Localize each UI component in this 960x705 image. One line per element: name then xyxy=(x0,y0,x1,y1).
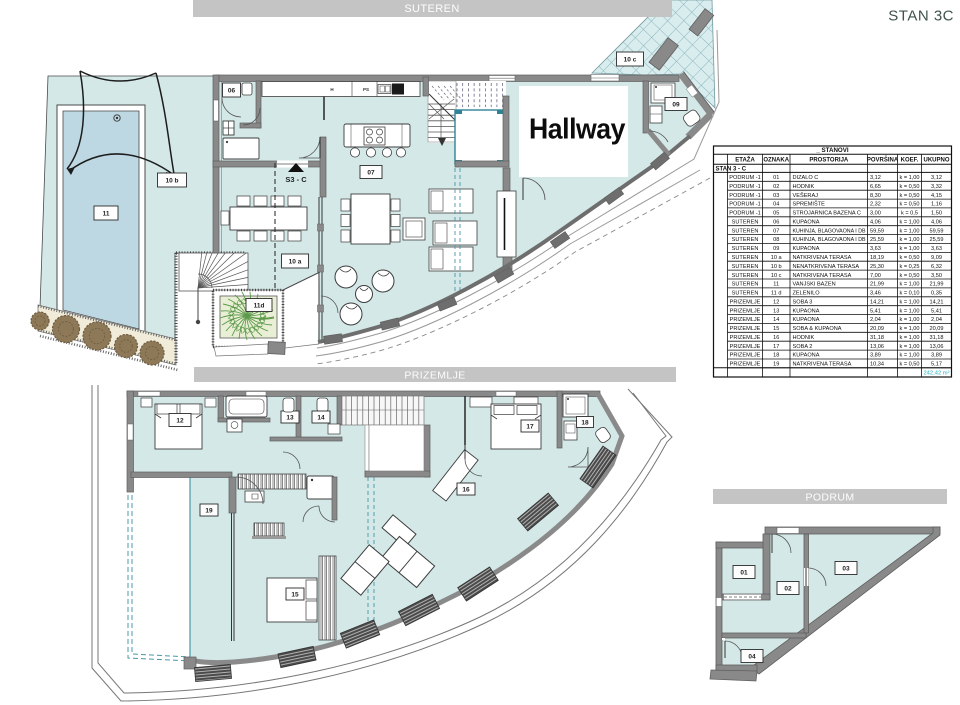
svg-text:k = 0,50: k = 0,50 xyxy=(899,362,919,368)
svg-text:POVRŠINA: POVRŠINA xyxy=(867,155,899,163)
svg-text:SUTEREN: SUTEREN xyxy=(732,255,759,261)
svg-text:SPREMIŠTE: SPREMIŠTE xyxy=(793,201,826,208)
svg-text:59,59: 59,59 xyxy=(930,228,944,234)
svg-text:17: 17 xyxy=(526,423,534,430)
svg-text:_ STANOVI: _ STANOVI xyxy=(815,147,848,154)
svg-text:21,99: 21,99 xyxy=(930,282,944,288)
svg-text:PRIZEMLJE: PRIZEMLJE xyxy=(404,370,465,382)
svg-text:k = 1,00: k = 1,00 xyxy=(899,344,919,350)
svg-text:3,12: 3,12 xyxy=(870,175,881,181)
svg-text:09: 09 xyxy=(672,101,680,108)
svg-text:k = 1,00: k = 1,00 xyxy=(899,282,919,288)
svg-text:k = 1,00: k = 1,00 xyxy=(899,326,919,332)
svg-text:1,16: 1,16 xyxy=(931,202,942,208)
svg-text:k = 0,50: k = 0,50 xyxy=(899,202,919,208)
svg-text:10 c: 10 c xyxy=(624,56,637,63)
svg-text:17: 17 xyxy=(773,344,779,350)
svg-text:07: 07 xyxy=(367,169,375,176)
svg-text:09: 09 xyxy=(773,246,779,252)
svg-text:STAN 3 - C: STAN 3 - C xyxy=(716,167,747,173)
svg-text:06: 06 xyxy=(228,87,236,94)
svg-text:14,21: 14,21 xyxy=(930,299,944,305)
svg-text:VEŠERAJ: VEŠERAJ xyxy=(793,192,819,199)
svg-text:5,41: 5,41 xyxy=(870,308,881,314)
svg-text:PRIZEMLJE: PRIZEMLJE xyxy=(730,299,761,305)
svg-text:0,35: 0,35 xyxy=(931,291,942,297)
svg-text:2,32: 2,32 xyxy=(870,202,881,208)
svg-text:4,15: 4,15 xyxy=(931,193,942,199)
svg-text:02: 02 xyxy=(784,585,792,592)
svg-text:19: 19 xyxy=(205,507,213,514)
svg-text:KUPAONA: KUPAONA xyxy=(793,317,820,323)
svg-text:10 a: 10 a xyxy=(771,255,783,261)
svg-text:2,04: 2,04 xyxy=(870,317,881,323)
svg-text:PODRUM: PODRUM xyxy=(805,492,854,504)
svg-text:18: 18 xyxy=(581,419,589,426)
svg-text:PRIZEMLJE: PRIZEMLJE xyxy=(730,335,761,341)
svg-text:31,18: 31,18 xyxy=(930,335,944,341)
svg-text:UKUPNO: UKUPNO xyxy=(923,157,949,163)
svg-text:k = 0,10: k = 0,10 xyxy=(899,291,919,297)
svg-text:SUTEREN: SUTEREN xyxy=(732,282,759,288)
svg-text:OZNAKA: OZNAKA xyxy=(763,157,789,163)
svg-text:k = 1,00: k = 1,00 xyxy=(899,237,919,243)
svg-text:S3 - C: S3 - C xyxy=(285,175,307,184)
svg-text:20,09: 20,09 xyxy=(870,326,884,332)
svg-text:25,59: 25,59 xyxy=(870,237,884,243)
svg-text:03: 03 xyxy=(842,565,850,572)
svg-text:HODNIK: HODNIK xyxy=(793,184,815,190)
svg-text:16: 16 xyxy=(773,335,779,341)
svg-text:SOBA & KUPAONA: SOBA & KUPAONA xyxy=(793,326,842,332)
svg-text:SUTEREN: SUTEREN xyxy=(732,291,759,297)
svg-text:KUHINJA, BLAGOVAONA I DB: KUHINJA, BLAGOVAONA I DB xyxy=(793,237,866,243)
svg-text:k = 1,00: k = 1,00 xyxy=(899,308,919,314)
svg-text:STAN 3C: STAN 3C xyxy=(888,8,954,25)
svg-text:2,04: 2,04 xyxy=(931,317,942,323)
svg-text:3,32: 3,32 xyxy=(931,184,942,190)
svg-text:SUTEREN: SUTEREN xyxy=(732,237,759,243)
svg-text:SUTEREN: SUTEREN xyxy=(404,3,459,15)
svg-text:k = 1,00: k = 1,00 xyxy=(899,228,919,234)
svg-text:k = 0,50: k = 0,50 xyxy=(899,273,919,279)
svg-text:SUTEREN: SUTEREN xyxy=(732,264,759,270)
svg-text:14: 14 xyxy=(773,317,779,323)
svg-text:k = 0,5: k = 0,5 xyxy=(901,211,918,217)
svg-text:PODRUM -1: PODRUM -1 xyxy=(729,211,760,217)
svg-text:NENATKRIVENA TERASA: NENATKRIVENA TERASA xyxy=(793,264,860,270)
svg-text:PRIZEMLJE: PRIZEMLJE xyxy=(730,317,761,323)
svg-text:6,32: 6,32 xyxy=(931,264,942,270)
svg-text:DIZALO C: DIZALO C xyxy=(793,175,819,181)
svg-text:PODRUM -1: PODRUM -1 xyxy=(729,193,760,199)
svg-text:PODRUM -1: PODRUM -1 xyxy=(729,202,760,208)
svg-text:PRIZEMLJE: PRIZEMLJE xyxy=(730,308,761,314)
svg-text:k = 1,00: k = 1,00 xyxy=(899,317,919,323)
svg-text:3,63: 3,63 xyxy=(870,246,881,252)
svg-text:15: 15 xyxy=(291,591,299,598)
svg-text:8,30: 8,30 xyxy=(870,193,881,199)
svg-text:PODRUM -1: PODRUM -1 xyxy=(729,175,760,181)
svg-text:12: 12 xyxy=(176,417,184,424)
svg-text:k = 1,00: k = 1,00 xyxy=(899,353,919,359)
svg-text:08: 08 xyxy=(773,237,779,243)
svg-text:04: 04 xyxy=(773,202,779,208)
svg-text:06: 06 xyxy=(773,220,779,226)
svg-text:STROJARNICA BAZENA C: STROJARNICA BAZENA C xyxy=(793,211,861,217)
svg-text:KUPAONA: KUPAONA xyxy=(793,246,820,252)
svg-text:k = 0,25: k = 0,25 xyxy=(899,264,919,270)
svg-text:3,50: 3,50 xyxy=(931,273,942,279)
svg-text:3,46: 3,46 xyxy=(870,291,881,297)
svg-text:31,18: 31,18 xyxy=(870,335,884,341)
svg-text:10 c: 10 c xyxy=(771,273,782,279)
svg-text:KUPAONA: KUPAONA xyxy=(793,353,820,359)
svg-text:PRIZEMLJE: PRIZEMLJE xyxy=(730,353,761,359)
svg-text:HODNIK: HODNIK xyxy=(793,335,815,341)
svg-text:KUHINJA, BLAGOVAONA I DB: KUHINJA, BLAGOVAONA I DB xyxy=(793,228,866,234)
svg-text:5,17: 5,17 xyxy=(931,362,942,368)
svg-text:11 d: 11 d xyxy=(771,291,781,297)
svg-text:SUTEREN: SUTEREN xyxy=(732,220,759,226)
svg-text:20,09: 20,09 xyxy=(930,326,944,332)
svg-text:11: 11 xyxy=(773,282,779,288)
svg-text:19: 19 xyxy=(773,362,779,368)
svg-text:242,42 m²: 242,42 m² xyxy=(923,371,949,377)
svg-text:07: 07 xyxy=(773,228,779,234)
svg-text:PRIZEMLJE: PRIZEMLJE xyxy=(730,344,761,350)
svg-text:KOEF.: KOEF. xyxy=(901,157,919,163)
svg-text:Hallway: Hallway xyxy=(529,114,625,146)
svg-text:13: 13 xyxy=(773,308,779,314)
svg-text:SOBA 2: SOBA 2 xyxy=(793,344,813,350)
svg-text:k = 0,50: k = 0,50 xyxy=(899,184,919,190)
svg-text:3,00: 3,00 xyxy=(870,211,881,217)
svg-text:11: 11 xyxy=(103,210,110,217)
svg-text:NATKRIVENA TERASA: NATKRIVENA TERASA xyxy=(793,255,852,261)
svg-text:9,09: 9,09 xyxy=(931,255,942,261)
svg-text:18: 18 xyxy=(773,353,779,359)
svg-text:k = 0,50: k = 0,50 xyxy=(899,255,919,261)
svg-text:PROSTORIJA: PROSTORIJA xyxy=(809,157,849,163)
svg-text:PRIZEMLJE: PRIZEMLJE xyxy=(730,326,761,332)
svg-text:10 a: 10 a xyxy=(289,258,302,265)
svg-text:13: 13 xyxy=(286,414,294,421)
svg-text:H: H xyxy=(330,87,333,92)
svg-text:03: 03 xyxy=(773,193,779,199)
svg-text:15: 15 xyxy=(773,326,779,332)
svg-text:4,06: 4,06 xyxy=(931,220,942,226)
svg-text:12: 12 xyxy=(773,299,779,305)
svg-text:6,65: 6,65 xyxy=(870,184,881,190)
svg-text:14: 14 xyxy=(317,414,325,421)
svg-text:3,12: 3,12 xyxy=(931,175,942,181)
svg-text:16: 16 xyxy=(462,486,470,493)
svg-text:7,00: 7,00 xyxy=(870,273,881,279)
svg-text:11d: 11d xyxy=(254,302,265,309)
svg-text:59,59: 59,59 xyxy=(870,228,884,234)
svg-text:PODRUM -1: PODRUM -1 xyxy=(729,184,760,190)
svg-text:SUTEREN: SUTEREN xyxy=(732,246,759,252)
svg-text:18,19: 18,19 xyxy=(870,255,884,261)
svg-text:k = 1,00: k = 1,00 xyxy=(899,335,919,341)
svg-text:14,21: 14,21 xyxy=(870,299,884,305)
svg-text:k = 0,50: k = 0,50 xyxy=(899,193,919,199)
svg-text:04: 04 xyxy=(748,653,756,660)
svg-text:10 b: 10 b xyxy=(165,177,178,184)
svg-text:ZELENILO: ZELENILO xyxy=(793,291,821,297)
svg-text:k = 1,00: k = 1,00 xyxy=(899,299,919,305)
svg-text:1,50: 1,50 xyxy=(931,211,942,217)
svg-text:3,89: 3,89 xyxy=(870,353,881,359)
svg-text:21,99: 21,99 xyxy=(870,282,884,288)
svg-text:01: 01 xyxy=(773,175,779,181)
svg-text:05: 05 xyxy=(773,211,779,217)
svg-text:25,30: 25,30 xyxy=(870,264,884,270)
svg-text:01: 01 xyxy=(740,569,748,576)
svg-text:PRIZEMLJE: PRIZEMLJE xyxy=(730,362,761,368)
svg-text:3,89: 3,89 xyxy=(931,353,942,359)
svg-text:13,06: 13,06 xyxy=(870,344,884,350)
svg-text:k = 1,00: k = 1,00 xyxy=(899,175,919,181)
svg-text:10,34: 10,34 xyxy=(870,362,884,368)
svg-text:k = 1,00: k = 1,00 xyxy=(899,220,919,226)
svg-text:SOBA 3: SOBA 3 xyxy=(793,299,813,305)
svg-text:VANJSKI BAZEN: VANJSKI BAZEN xyxy=(793,282,836,288)
svg-text:KUPAONA: KUPAONA xyxy=(793,308,820,314)
svg-text:10 b: 10 b xyxy=(771,264,782,270)
svg-text:NATKRIVENA TERASA: NATKRIVENA TERASA xyxy=(793,362,852,368)
svg-text:5,41: 5,41 xyxy=(931,308,942,314)
svg-text:KUPAONA: KUPAONA xyxy=(793,220,820,226)
svg-text:NATKRIVENA TERASA: NATKRIVENA TERASA xyxy=(793,273,852,279)
svg-text:SUTEREN: SUTEREN xyxy=(732,228,759,234)
svg-text:k = 1,00: k = 1,00 xyxy=(899,246,919,252)
svg-text:PS: PS xyxy=(363,87,369,92)
svg-text:13,06: 13,06 xyxy=(930,344,944,350)
svg-text:ETAŽA: ETAŽA xyxy=(735,155,755,163)
svg-text:3,63: 3,63 xyxy=(931,246,942,252)
svg-text:25,59: 25,59 xyxy=(930,237,944,243)
svg-text:SUTEREN: SUTEREN xyxy=(732,273,759,279)
svg-text:02: 02 xyxy=(773,184,779,190)
svg-text:4,06: 4,06 xyxy=(870,220,881,226)
